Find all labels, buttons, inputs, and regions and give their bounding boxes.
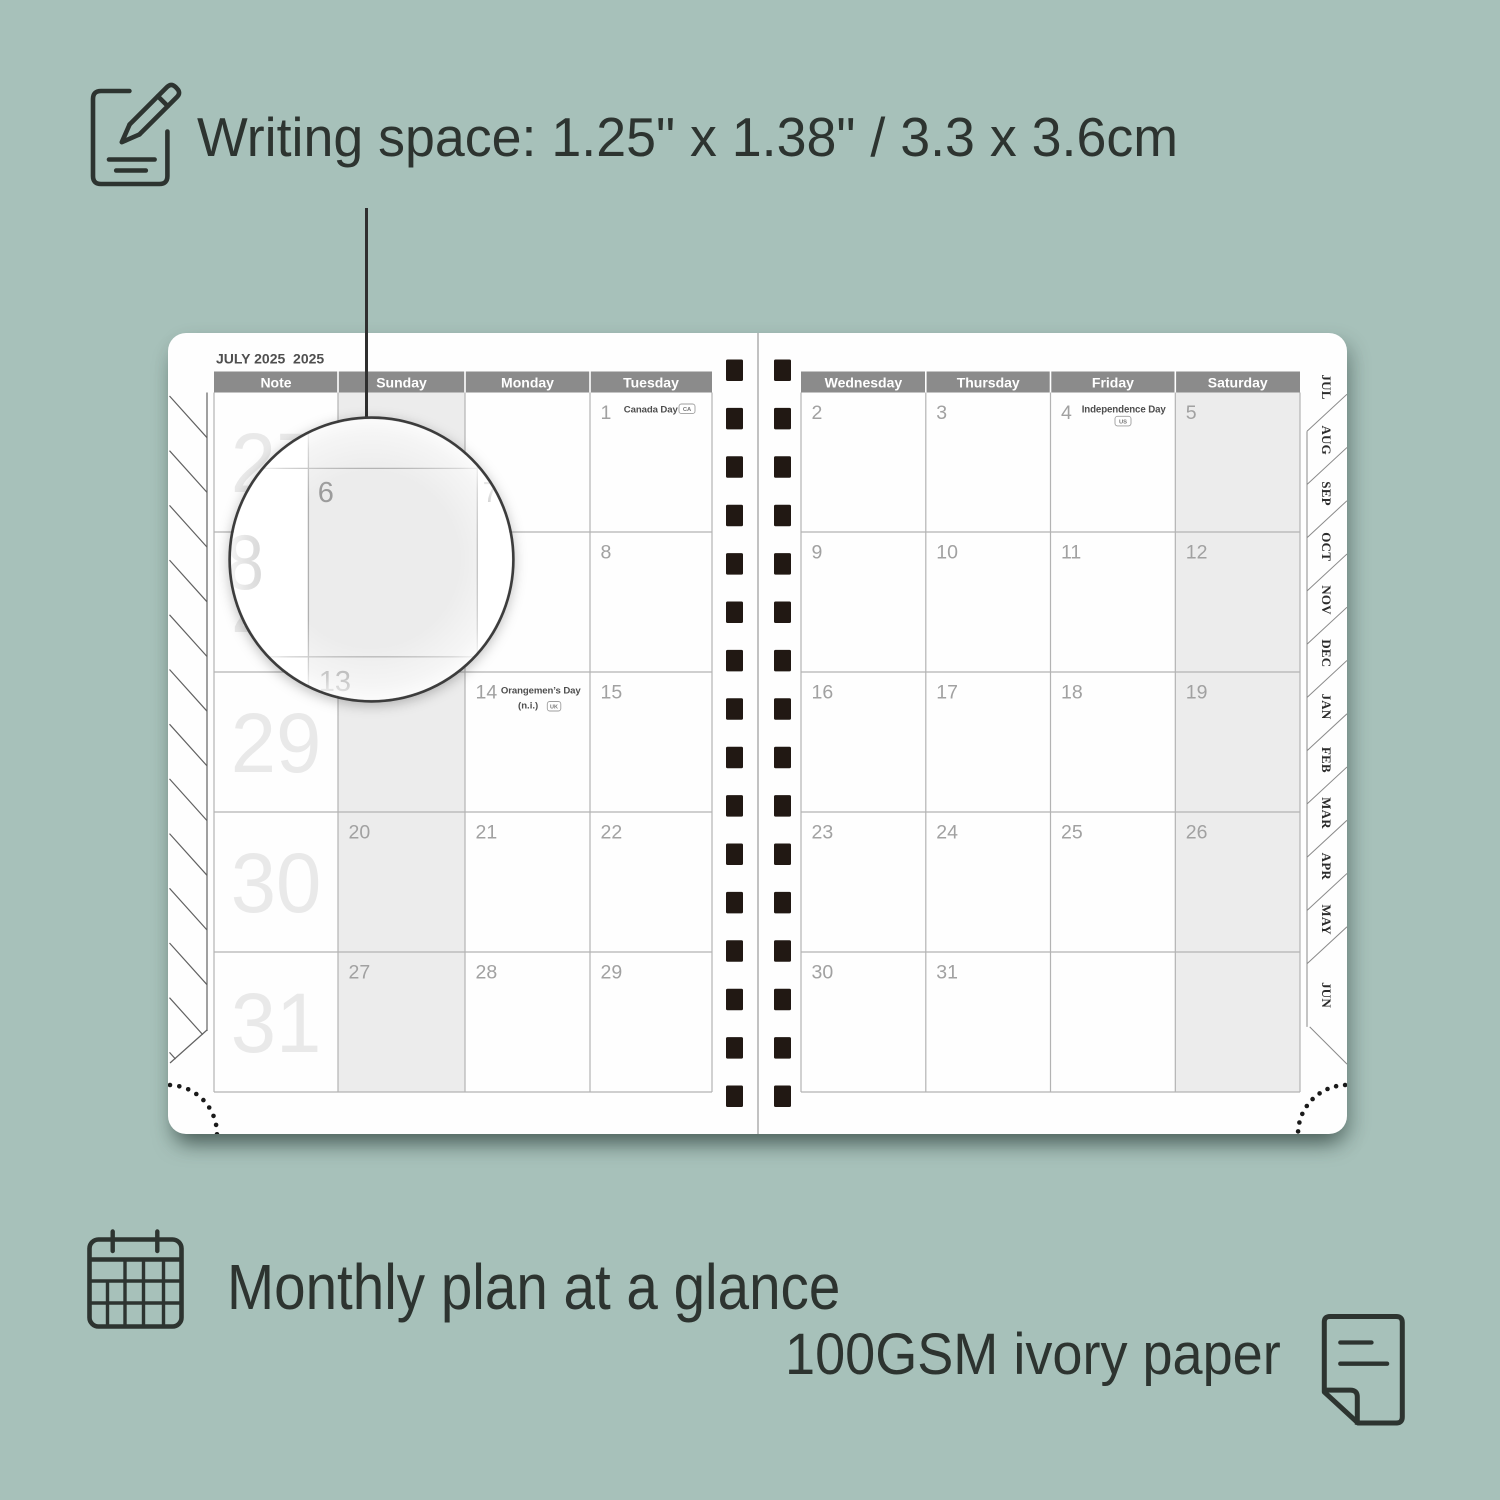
svg-text:12: 12 xyxy=(1186,542,1208,564)
svg-text:FEB: FEB xyxy=(1319,747,1334,773)
svg-text:NOV: NOV xyxy=(1319,585,1334,615)
svg-text:1: 1 xyxy=(601,402,612,424)
svg-text:11: 11 xyxy=(1061,542,1081,564)
svg-text:OCT: OCT xyxy=(1319,532,1334,561)
svg-text:29: 29 xyxy=(231,696,322,790)
svg-text:22: 22 xyxy=(601,822,623,844)
svg-text:16: 16 xyxy=(812,682,834,704)
svg-text:3: 3 xyxy=(936,402,947,424)
svg-text:JAN: JAN xyxy=(1319,694,1334,720)
svg-text:29: 29 xyxy=(601,962,623,984)
svg-text:9: 9 xyxy=(812,542,823,564)
svg-text:17: 17 xyxy=(936,682,958,704)
svg-text:Friday: Friday xyxy=(1092,374,1134,390)
svg-text:Wednesday: Wednesday xyxy=(825,374,903,390)
svg-text:24: 24 xyxy=(936,822,958,844)
svg-text:5: 5 xyxy=(1186,402,1197,424)
svg-text:Note: Note xyxy=(260,374,291,390)
svg-text:JUN: JUN xyxy=(1319,982,1334,1008)
svg-text:18: 18 xyxy=(1061,682,1083,704)
svg-text:31: 31 xyxy=(936,962,958,984)
svg-text:APR: APR xyxy=(1319,853,1334,881)
svg-text:31: 31 xyxy=(231,976,322,1070)
svg-text:Independence Day: Independence Day xyxy=(1082,404,1167,415)
svg-text:30: 30 xyxy=(231,836,322,930)
svg-text:UK: UK xyxy=(550,704,558,710)
svg-text:JUL: JUL xyxy=(1319,374,1334,399)
svg-text:JULY 2025 2025: JULY 2025 2025 xyxy=(216,351,324,367)
svg-text:(n.i.): (n.i.) xyxy=(518,700,538,711)
svg-text:Saturday: Saturday xyxy=(1208,374,1268,390)
svg-text:20: 20 xyxy=(349,822,371,844)
svg-text:28: 28 xyxy=(476,962,498,984)
svg-text:4: 4 xyxy=(1061,402,1072,424)
svg-text:CA: CA xyxy=(683,407,692,413)
svg-text:Sunday: Sunday xyxy=(376,374,427,390)
svg-text:SEP: SEP xyxy=(1319,481,1334,505)
svg-text:23: 23 xyxy=(812,822,834,844)
svg-text:DEC: DEC xyxy=(1319,639,1334,667)
svg-text:Canada Day: Canada Day xyxy=(624,404,679,415)
svg-text:19: 19 xyxy=(1186,682,1208,704)
svg-text:Monday: Monday xyxy=(501,374,554,390)
svg-text:Tuesday: Tuesday xyxy=(623,374,679,390)
svg-text:27: 27 xyxy=(349,962,371,984)
svg-text:30: 30 xyxy=(812,962,834,984)
svg-text:8: 8 xyxy=(601,542,612,564)
svg-text:15: 15 xyxy=(601,682,623,704)
svg-text:2: 2 xyxy=(812,402,823,424)
svg-text:Thursday: Thursday xyxy=(957,374,1020,390)
svg-text:US: US xyxy=(1119,419,1127,425)
svg-text:25: 25 xyxy=(1061,822,1083,844)
svg-text:21: 21 xyxy=(476,822,498,844)
svg-text:AUG: AUG xyxy=(1319,425,1334,455)
svg-text:26: 26 xyxy=(1186,822,1208,844)
svg-text:MAY: MAY xyxy=(1319,904,1334,935)
svg-text:10: 10 xyxy=(936,542,958,564)
svg-text:MAR: MAR xyxy=(1319,797,1334,829)
